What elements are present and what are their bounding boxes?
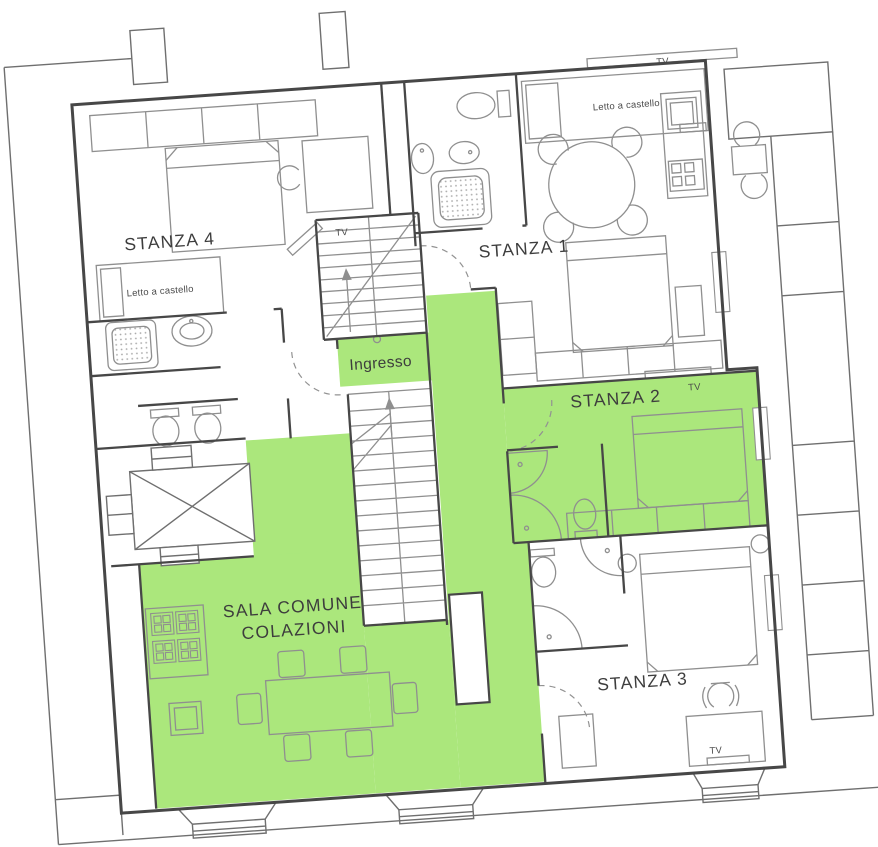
tv-label: TV xyxy=(688,382,702,394)
door-arc xyxy=(539,682,590,733)
chimney-outline-2 xyxy=(319,12,349,70)
terrace-room xyxy=(724,62,833,139)
tv-label: TV xyxy=(709,745,723,757)
tv-label: TV xyxy=(335,227,349,239)
room-label-stanza3: STANZA 3 xyxy=(596,668,688,694)
double-bed-icon xyxy=(566,236,673,353)
sink-icon xyxy=(410,143,434,174)
area-sala-comune xyxy=(139,549,376,809)
bunk-bed-label: Letto a castello xyxy=(592,98,660,114)
double-bed-icon xyxy=(640,547,758,672)
desk-icon xyxy=(302,136,373,212)
round-table-icon xyxy=(546,139,638,231)
desk-icon xyxy=(686,711,765,766)
nightstand-icon xyxy=(618,554,637,573)
kitchenette-icon xyxy=(661,91,708,199)
toilet-icon xyxy=(530,548,554,557)
chair-icon xyxy=(608,124,645,161)
bidet-icon xyxy=(448,141,479,165)
chimney-outline xyxy=(130,28,168,84)
balcony-table-icon xyxy=(731,145,767,175)
nightstand-icon xyxy=(675,285,704,337)
shaft-void xyxy=(103,441,256,569)
stair-parapet xyxy=(449,592,490,704)
side-table-icon xyxy=(559,714,597,768)
tv-icon xyxy=(707,755,749,765)
bunk-bed-label: Letto a castello xyxy=(126,284,194,300)
toilet-icon xyxy=(497,90,511,117)
corner-shower-icon xyxy=(580,536,623,579)
room-stanza-3: STANZA 3 TV xyxy=(529,525,785,776)
nightstand-icon xyxy=(751,534,770,553)
floor-plan-page: STANZA 4 Letto a castello TV xyxy=(0,0,878,847)
chair-icon xyxy=(614,202,650,238)
door-arc xyxy=(421,243,471,293)
room-label-stanza1: STANZA 1 xyxy=(478,235,570,261)
chair-icon xyxy=(273,161,306,194)
door-arc xyxy=(292,349,341,398)
balcony-furniture xyxy=(727,115,773,205)
corner-shower-icon xyxy=(533,603,582,652)
area-below-stairs xyxy=(364,620,461,794)
floor-plan-drawing: STANZA 4 Letto a castello TV xyxy=(0,0,878,847)
stairwell-upper xyxy=(316,213,428,346)
plan-rotated-group: STANZA 4 Letto a castello TV xyxy=(2,0,878,847)
closet-icon xyxy=(90,100,318,152)
